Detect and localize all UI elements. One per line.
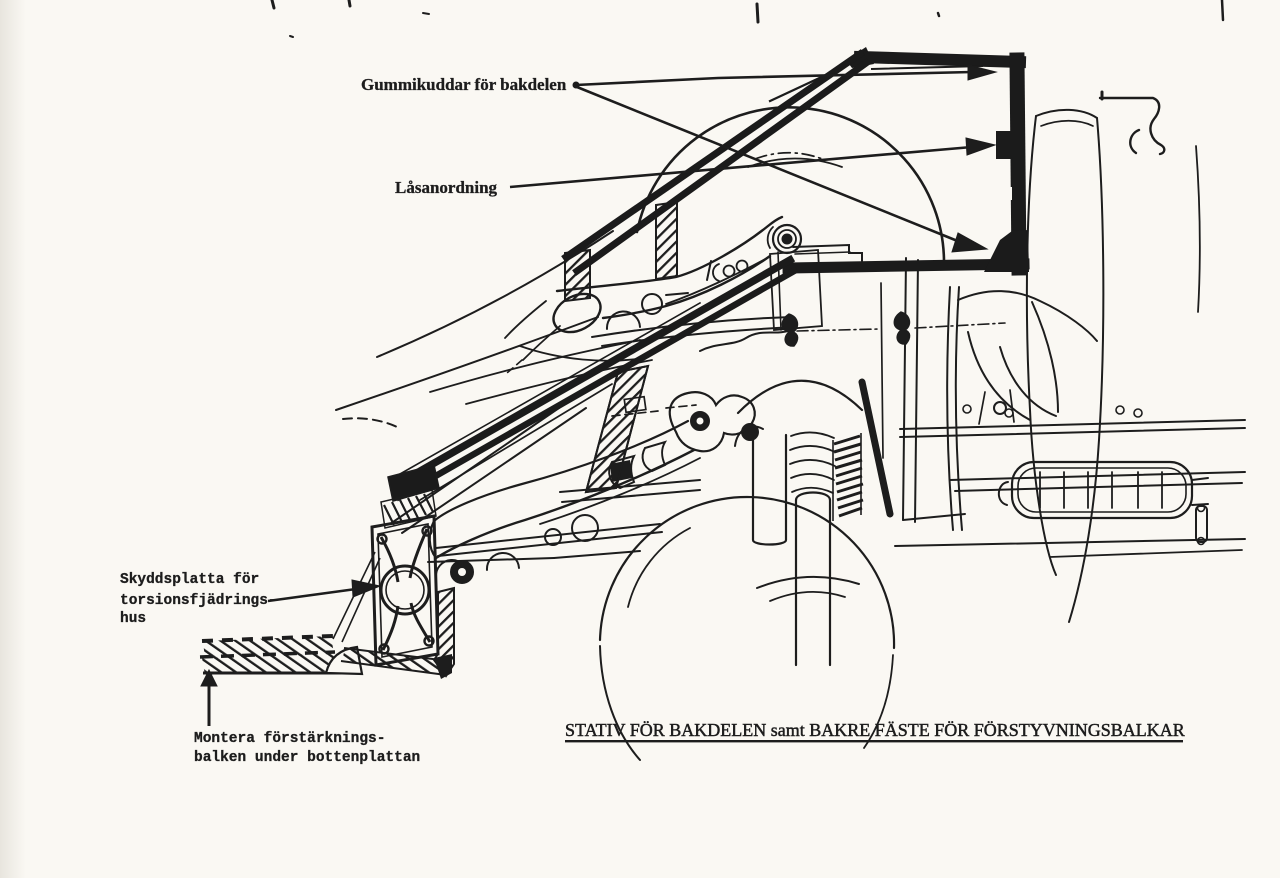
svg-text:Låsanordning: Låsanordning: [395, 178, 498, 197]
svg-text:balken under bottenplattan: balken under bottenplattan: [194, 750, 420, 766]
svg-text:Gummikuddar för bakdelen: Gummikuddar för bakdelen: [361, 75, 567, 94]
svg-text:Montera förstärknings-: Montera förstärknings-: [194, 731, 385, 747]
svg-text:hus: hus: [120, 611, 146, 627]
svg-text:Skyddsplatta för: Skyddsplatta för: [120, 572, 259, 588]
svg-text:torsionsfjädrings-: torsionsfjädrings-: [120, 593, 277, 609]
svg-text:STATIV FÖR BAKDELEN samt BAKRE: STATIV FÖR BAKDELEN samt BAKRE FÄSTE FÖR…: [565, 720, 1185, 740]
